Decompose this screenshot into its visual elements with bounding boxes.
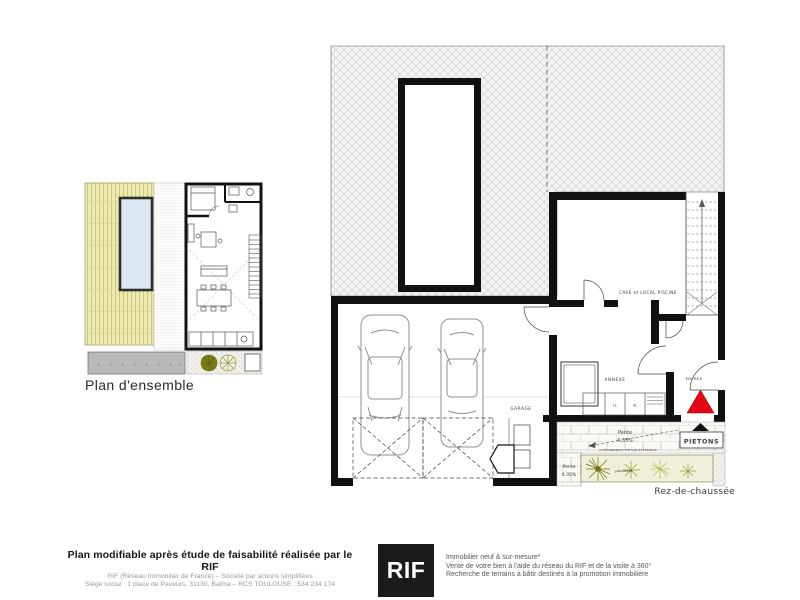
footer-right-block: Immobilier neuf & sur-mesure* Vente de v… bbox=[446, 554, 651, 580]
site-overview-plan bbox=[83, 180, 268, 398]
car-2 bbox=[438, 319, 486, 447]
ramp-arrow-icon bbox=[490, 445, 514, 473]
footer-service-line-1: Immobilier neuf & sur-mesure* bbox=[446, 554, 651, 563]
plan-sheet: Plan d'ensemble bbox=[0, 0, 800, 600]
pente-label: Pente bbox=[618, 430, 632, 436]
annexe-label: ANNEXE bbox=[605, 377, 626, 382]
footer-left-block: Plan modifiable après étude de faisabili… bbox=[58, 549, 362, 589]
footer-title: Plan modifiable après étude de faisabili… bbox=[58, 549, 362, 573]
cheminement-label: CHEMINEMENT PIETON EXTERIEUR bbox=[599, 448, 657, 452]
upper-void bbox=[402, 82, 478, 289]
floor-caption: Rez-de-chaussée bbox=[654, 486, 735, 497]
jardiniere-label: JARDINIERE bbox=[614, 469, 632, 473]
driveway bbox=[88, 352, 185, 374]
pietons-label: PIETONS bbox=[684, 438, 719, 446]
plant-icon bbox=[650, 459, 670, 479]
entry-court bbox=[187, 351, 262, 374]
terrace-tiles bbox=[154, 183, 185, 350]
hatched-plot-area bbox=[331, 46, 724, 296]
jardiniere-strip bbox=[581, 455, 713, 482]
footer-service-line-3: Recherche de terrains à bâtir destinés à… bbox=[446, 571, 651, 580]
rif-logo-text: RIF bbox=[387, 557, 426, 584]
footer-address-line: Siège social : 1 place de Paveurs, 31130… bbox=[58, 581, 362, 589]
pool bbox=[120, 198, 152, 290]
rif-logo: RIF bbox=[378, 544, 434, 597]
footer-company-line: RIF (Réseau Immobilier de France) – Soci… bbox=[58, 573, 362, 581]
pente2-label: Pente bbox=[563, 464, 576, 470]
entree-label: ENTREE bbox=[686, 376, 703, 381]
ll-label: LL bbox=[613, 404, 617, 408]
bush-icon bbox=[201, 355, 217, 371]
stairs bbox=[686, 192, 718, 315]
pente2-value: 4.35% bbox=[562, 472, 577, 478]
ground-floor-plan: PIETONS CAVE et LOCAL PISCINE GARAGE ANN… bbox=[328, 42, 738, 502]
garage-label: GARAGE bbox=[510, 406, 531, 411]
utility-cells bbox=[583, 393, 665, 415]
footer-service-line-2: Vente de votre bien à l'aide du réseau d… bbox=[446, 563, 651, 572]
bush-icon bbox=[220, 355, 236, 371]
cave-label: CAVE et LOCAL PISCINE bbox=[619, 290, 677, 295]
house-floorplan bbox=[186, 184, 261, 349]
garage-room bbox=[338, 315, 549, 478]
sl-label: SL bbox=[633, 404, 637, 408]
annexe-equipment bbox=[561, 362, 598, 406]
plant-icon bbox=[586, 457, 610, 481]
entry-marker-triangle bbox=[687, 390, 714, 413]
pente-value: 4.35% bbox=[617, 438, 633, 444]
site-plan-caption: Plan d'ensemble bbox=[85, 377, 194, 393]
